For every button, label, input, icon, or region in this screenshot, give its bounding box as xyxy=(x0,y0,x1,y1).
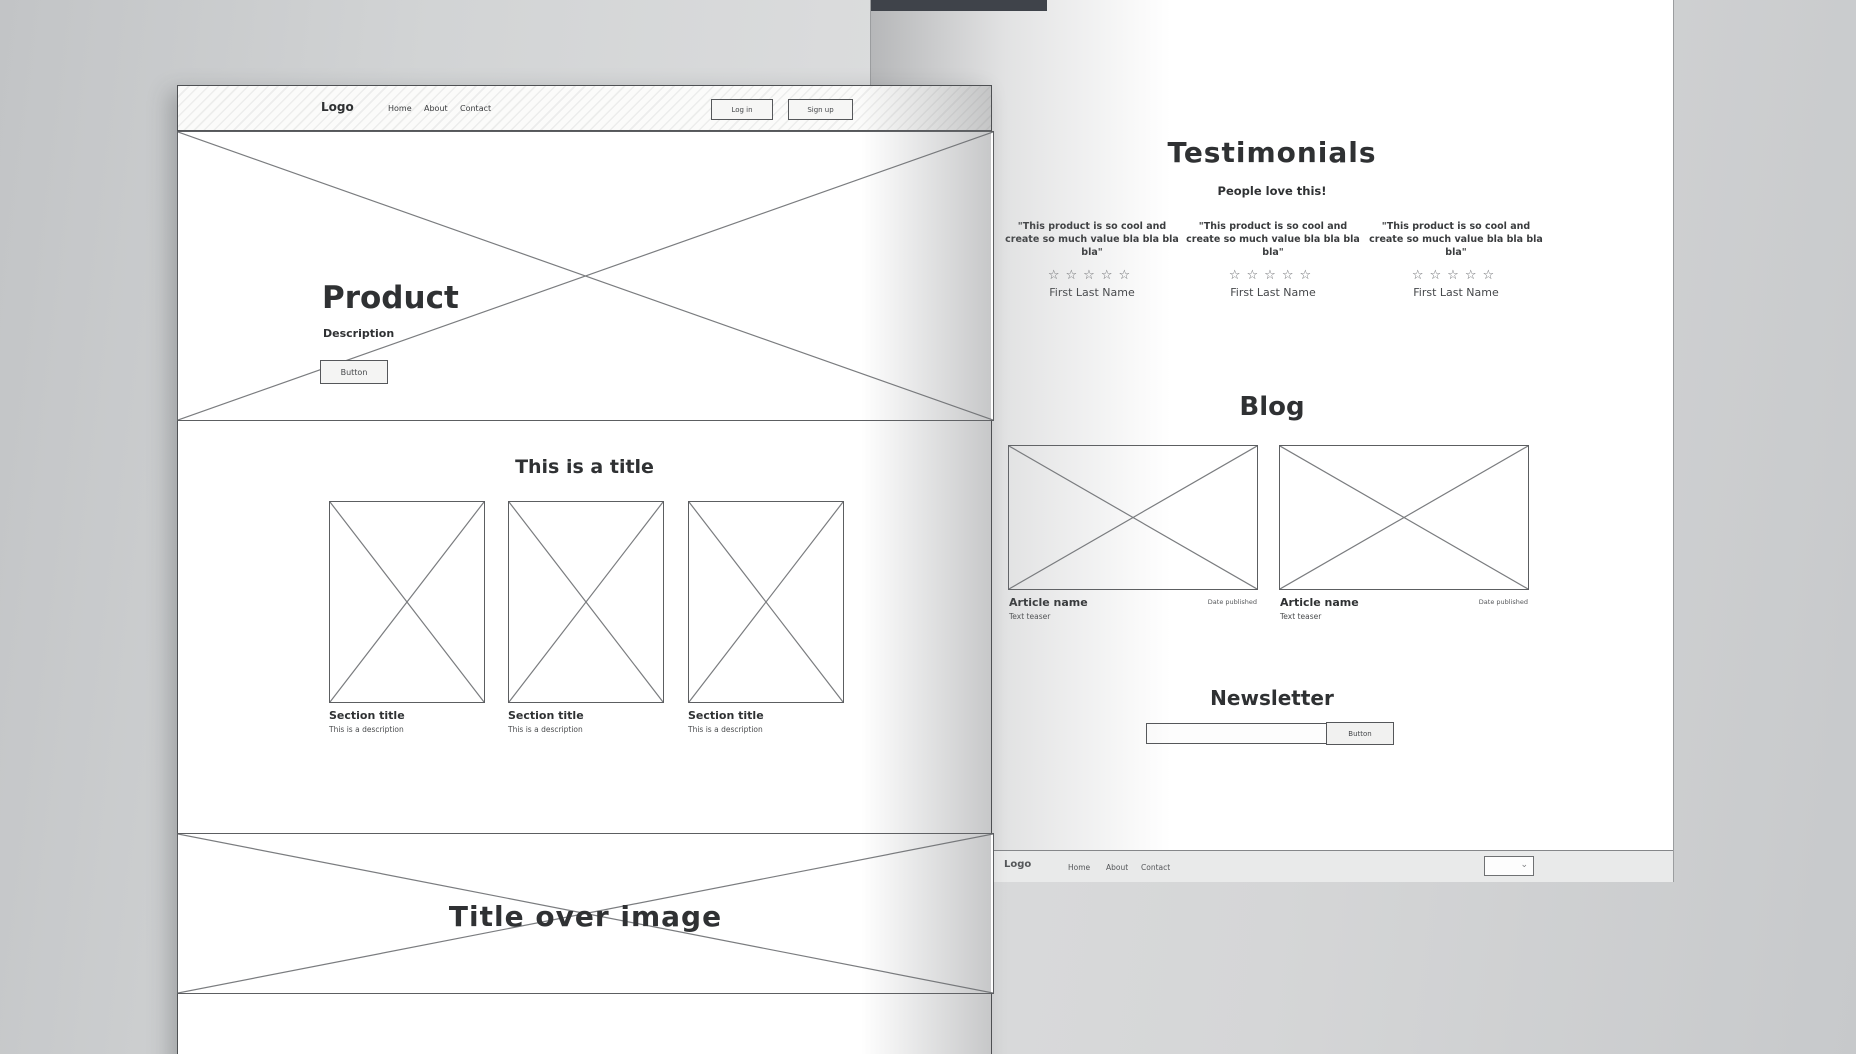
signup-button[interactable]: Sign up xyxy=(788,99,853,120)
testimonial-card: "This product is so cool and create so m… xyxy=(1366,220,1546,299)
image-placeholder xyxy=(1008,445,1258,590)
article-teaser: Text teaser xyxy=(1280,612,1321,621)
testimonial-quote: "This product is so cool and create so m… xyxy=(1002,220,1182,259)
star-rating: ☆☆☆☆☆ xyxy=(1366,268,1546,283)
header-logo: Logo xyxy=(321,100,354,114)
blog-article-card[interactable]: Article name Date published Text teaser xyxy=(1008,445,1258,590)
login-button[interactable]: Log in xyxy=(711,99,773,120)
banner-title: Title over image xyxy=(178,900,993,933)
feature-description: This is a description xyxy=(508,725,664,734)
page-header: Logo Home About Contact Log in Sign up xyxy=(178,86,991,131)
chevron-down-icon: ⌄ xyxy=(1520,860,1528,870)
nav-contact[interactable]: Contact xyxy=(460,104,491,113)
article-date: Date published xyxy=(1479,598,1528,606)
testimonial-quote: "This product is so cool and create so m… xyxy=(1183,220,1363,259)
nav-about[interactable]: About xyxy=(424,104,448,113)
wireframe-canvas: Testimonials People love this! "This pro… xyxy=(0,0,1856,1054)
wireframe-page-left: Logo Home About Contact Log in Sign up P… xyxy=(177,85,992,1054)
testimonial-card: "This product is so cool and create so m… xyxy=(1002,220,1182,299)
hero-section: Product Description Button xyxy=(177,131,994,421)
star-rating: ☆☆☆☆☆ xyxy=(1183,268,1363,283)
image-placeholder xyxy=(1279,445,1529,590)
article-date: Date published xyxy=(1208,598,1257,606)
testimonial-name: First Last Name xyxy=(1183,286,1363,299)
newsletter-email-input[interactable] xyxy=(1146,723,1328,744)
blog-article-card[interactable]: Article name Date published Text teaser xyxy=(1279,445,1529,590)
footer-language-dropdown[interactable]: ⌄ xyxy=(1484,856,1534,876)
image-placeholder xyxy=(508,501,664,703)
footer-logo: Logo xyxy=(1004,859,1031,870)
cropped-image-strip xyxy=(871,0,1047,11)
hero-description: Description xyxy=(323,327,394,340)
article-teaser: Text teaser xyxy=(1009,612,1050,621)
testimonial-name: First Last Name xyxy=(1002,286,1182,299)
feature-card: Section title This is a description xyxy=(508,501,664,734)
image-placeholder xyxy=(688,501,844,703)
image-placeholder xyxy=(329,501,485,703)
features-title: This is a title xyxy=(178,456,991,478)
testimonial-quote: "This product is so cool and create so m… xyxy=(1366,220,1546,259)
feature-description: This is a description xyxy=(688,725,844,734)
feature-card: Section title This is a description xyxy=(688,501,844,734)
article-name[interactable]: Article name xyxy=(1009,596,1088,609)
banner-section: Title over image xyxy=(177,833,994,994)
nav-home[interactable]: Home xyxy=(388,104,412,113)
hero-cta-button[interactable]: Button xyxy=(320,360,388,384)
star-rating: ☆☆☆☆☆ xyxy=(1002,268,1182,283)
footer-nav-about[interactable]: About xyxy=(1106,863,1128,872)
feature-description: This is a description xyxy=(329,725,485,734)
hero-title: Product xyxy=(322,280,459,316)
feature-title: Section title xyxy=(688,709,844,722)
feature-title: Section title xyxy=(508,709,664,722)
footer-nav-home[interactable]: Home xyxy=(1068,863,1090,872)
testimonial-card: "This product is so cool and create so m… xyxy=(1183,220,1363,299)
article-name[interactable]: Article name xyxy=(1280,596,1359,609)
feature-card: Section title This is a description xyxy=(329,501,485,734)
footer-nav-contact[interactable]: Contact xyxy=(1141,863,1170,872)
newsletter-submit-button[interactable]: Button xyxy=(1326,722,1394,745)
testimonial-name: First Last Name xyxy=(1366,286,1546,299)
feature-title: Section title xyxy=(329,709,485,722)
